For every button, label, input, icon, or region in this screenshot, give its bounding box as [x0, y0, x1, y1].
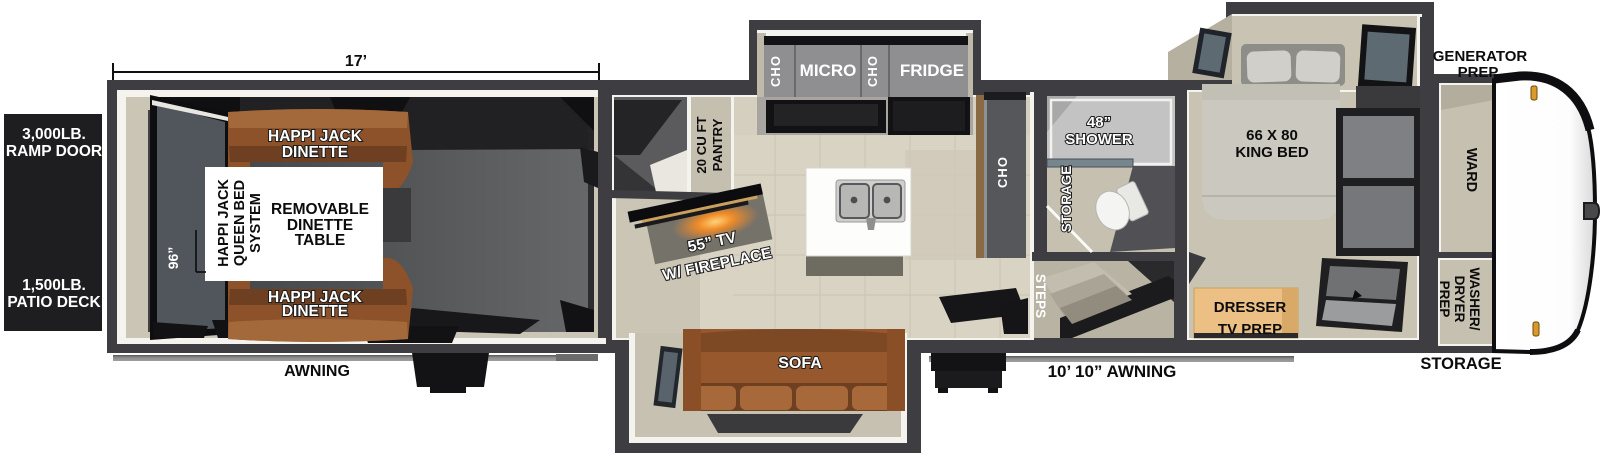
- svg-text:10’ 10” AWNING: 10’ 10” AWNING: [1048, 362, 1177, 381]
- svg-text:CHO: CHO: [865, 55, 880, 87]
- svg-text:TABLE: TABLE: [295, 232, 346, 249]
- svg-text:WASHER/: WASHER/: [1467, 267, 1482, 330]
- svg-text:QUEEN BED: QUEEN BED: [232, 180, 248, 266]
- svg-text:48”: 48”: [1087, 114, 1111, 131]
- svg-text:STORAGE: STORAGE: [1420, 355, 1501, 373]
- svg-text:FRIDGE: FRIDGE: [900, 61, 964, 80]
- svg-text:66 X 80: 66 X 80: [1246, 127, 1298, 144]
- svg-text:17’: 17’: [345, 53, 367, 70]
- svg-text:DRYER: DRYER: [1452, 276, 1467, 323]
- svg-text:SHOWER: SHOWER: [1065, 131, 1133, 148]
- svg-text:DINETTE: DINETTE: [282, 303, 348, 320]
- svg-text:HAPPI JACK: HAPPI JACK: [216, 179, 232, 267]
- svg-text:AWNING: AWNING: [284, 363, 350, 380]
- svg-text:DRESSER: DRESSER: [1214, 299, 1287, 316]
- svg-text:DINETTE: DINETTE: [282, 144, 348, 161]
- svg-text:HAPPI JACK: HAPPI JACK: [268, 128, 363, 145]
- svg-text:MICRO: MICRO: [800, 61, 857, 80]
- svg-text:CHO: CHO: [995, 156, 1010, 188]
- svg-text:GENERATOR: GENERATOR: [1433, 48, 1528, 65]
- svg-text:20 CU FT: 20 CU FT: [694, 116, 709, 173]
- svg-text:PREP: PREP: [1458, 64, 1499, 81]
- svg-text:STORAGE: STORAGE: [1059, 166, 1074, 233]
- svg-text:PATIO DECK: PATIO DECK: [7, 294, 101, 311]
- svg-text:1,500LB.: 1,500LB.: [22, 277, 86, 294]
- svg-text:KING BED: KING BED: [1235, 144, 1309, 161]
- svg-text:96”: 96”: [165, 247, 181, 270]
- svg-text:SYSTEM: SYSTEM: [248, 193, 264, 253]
- svg-text:SOFA: SOFA: [778, 355, 822, 372]
- svg-text:CHO: CHO: [768, 55, 783, 87]
- svg-text:PANTRY: PANTRY: [710, 118, 725, 171]
- svg-text:PREP: PREP: [1437, 281, 1452, 318]
- svg-text:STEPS: STEPS: [1033, 274, 1048, 318]
- svg-text:WARD: WARD: [1463, 148, 1479, 192]
- svg-text:REMOVABLE: REMOVABLE: [271, 201, 369, 218]
- svg-text:3,000LB.: 3,000LB.: [22, 126, 86, 143]
- svg-text:RAMP DOOR: RAMP DOOR: [6, 143, 102, 160]
- svg-text:TV PREP: TV PREP: [1218, 321, 1282, 338]
